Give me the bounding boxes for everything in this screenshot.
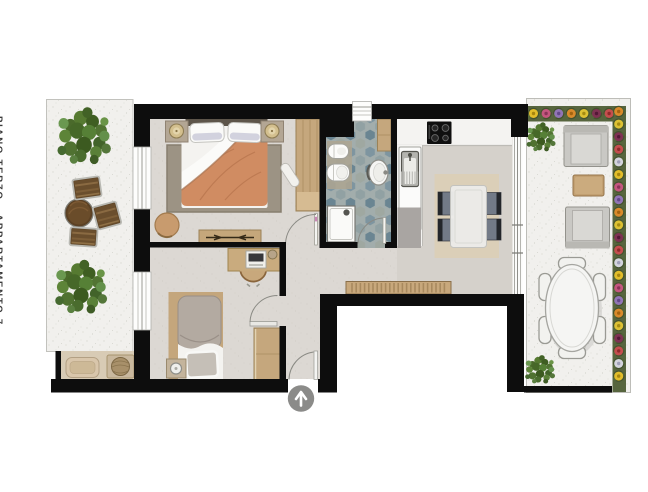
svg-text:PIANO TERZO - APPARTAMENTO 7: PIANO TERZO - APPARTAMENTO 7 — [0, 116, 4, 326]
